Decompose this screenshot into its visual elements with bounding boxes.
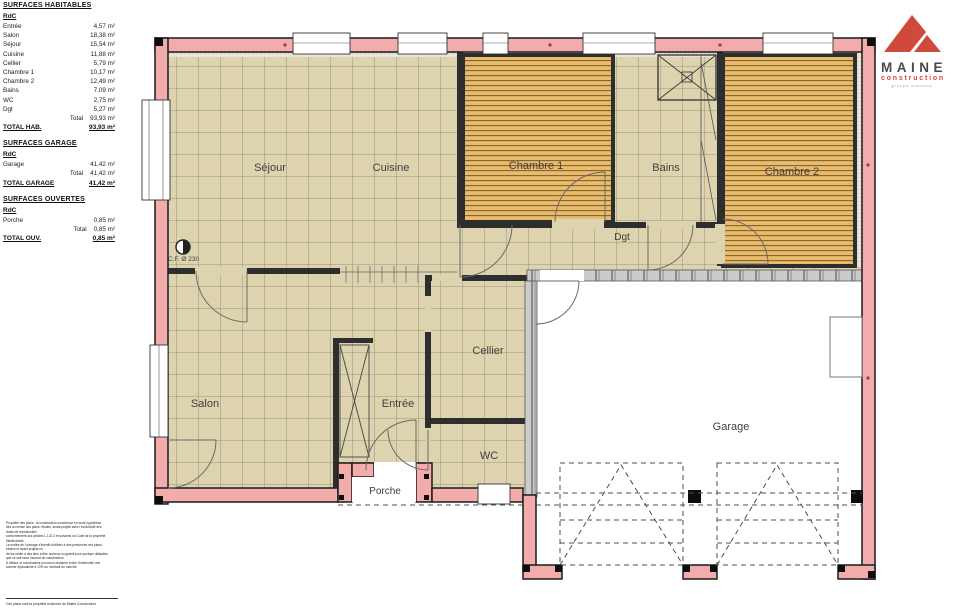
surface-legend: SURFACES HABITABLES RdC Entrée4,57 m² Sa…	[3, 2, 115, 244]
room-label-entree: Entrée	[382, 398, 414, 410]
grand-label: TOTAL OUV.	[3, 234, 41, 244]
room-label-chambre1: Chambre 1	[509, 160, 563, 172]
grand-total-row: TOTAL HAB.93,93 m²	[3, 123, 115, 133]
total-row: Total0,85 m²	[3, 225, 115, 234]
surface-row: Bains7,09 m²	[3, 86, 115, 95]
row-value: 5,27 m²	[94, 105, 115, 114]
row-label: Cellier	[3, 59, 21, 68]
total-value: 41,42 m²	[90, 169, 115, 178]
surface-row: Dgt5,27 m²	[3, 105, 115, 114]
surface-row: Salon18,38 m²	[3, 31, 115, 40]
mountain-icon	[868, 6, 956, 54]
row-value: 10,17 m²	[90, 68, 115, 77]
room-label-cellier: Cellier	[472, 345, 504, 357]
total-label: Total	[70, 169, 83, 178]
row-value: 5,79 m²	[94, 59, 115, 68]
room-label-chambre2: Chambre 2	[765, 166, 819, 178]
room-chambre1	[463, 55, 613, 222]
row-value: 4,57 m²	[94, 22, 115, 31]
row-value: 41,42 m²	[90, 160, 115, 169]
row-label: Chambre 2	[3, 77, 34, 86]
room-chambre2	[723, 55, 855, 266]
legal-fine-print: Propriété des plans : la construction co…	[6, 521, 126, 569]
total-value: 0,85 m²	[94, 225, 115, 234]
front-door-gap	[374, 462, 416, 478]
total-row: Total93,93 m²	[3, 114, 115, 123]
grand-label: TOTAL HAB.	[3, 123, 42, 133]
total-label: Total	[73, 225, 86, 234]
row-value: 18,38 m²	[90, 31, 115, 40]
row-label: Bains	[3, 86, 19, 95]
legend-level: RdC	[3, 207, 115, 214]
room-label-dgt: Dgt	[614, 232, 630, 243]
room-label-wc: WC	[480, 450, 498, 462]
grand-value: 0,85 m²	[93, 234, 115, 244]
floor-living-bottom	[168, 275, 528, 490]
legend-title-habitables: SURFACES HABITABLES	[3, 2, 115, 9]
room-label-bains: Bains	[652, 162, 680, 174]
row-value: 15,54 m²	[90, 40, 115, 49]
row-value: 12,49 m²	[90, 77, 115, 86]
surface-row: Cuisine11,88 m²	[3, 50, 115, 59]
total-label: Total	[70, 114, 83, 123]
surface-row: Garage41,42 m²	[3, 160, 115, 169]
surface-row: Porche0,85 m²	[3, 216, 115, 225]
row-value: 11,88 m²	[91, 50, 115, 59]
row-value: 7,09 m²	[94, 86, 115, 95]
row-label: Cuisine	[3, 50, 24, 59]
legend-level: RdC	[3, 13, 115, 20]
legend-level: RdC	[3, 151, 115, 158]
cf-label: C.F. Ø 230	[168, 256, 199, 263]
row-label: Porche	[3, 216, 23, 225]
grand-total-row: TOTAL GARAGE41,42 m²	[3, 179, 115, 189]
surface-row: Séjour15,54 m²	[3, 40, 115, 49]
maine-construction-logo: MAINE construction groupe maisons	[866, 6, 958, 88]
row-label: WC	[3, 96, 14, 105]
room-label-porche: Porche	[369, 486, 401, 497]
total-row: Total41,42 m²	[3, 169, 115, 178]
room-label-cuisine: Cuisine	[373, 162, 410, 174]
surface-row: Chambre 212,49 m²	[3, 77, 115, 86]
row-label: Dgt	[3, 105, 13, 114]
row-value: 2,75 m²	[94, 96, 115, 105]
row-label: Garage	[3, 160, 24, 169]
row-label: Séjour	[3, 40, 21, 49]
grand-value: 41,42 m²	[89, 179, 115, 189]
surface-row: Cellier5,79 m²	[3, 59, 115, 68]
surface-row: Entrée4,57 m²	[3, 22, 115, 31]
row-label: Salon	[3, 31, 19, 40]
room-label-garage: Garage	[713, 421, 750, 433]
row-value: 0,85 m²	[94, 216, 115, 225]
chimney-flue	[176, 240, 190, 254]
legend-title-ouvertes: SURFACES OUVERTES	[3, 196, 115, 203]
ownership-note: Ces plans sont la propriété exclusive de…	[6, 598, 118, 606]
total-value: 93,93 m²	[90, 114, 115, 123]
grand-label: TOTAL GARAGE	[3, 179, 54, 189]
logo-subtitle: construction	[868, 75, 958, 82]
grand-value: 93,93 m²	[89, 123, 115, 133]
legend-title-garage: SURFACES GARAGE	[3, 140, 115, 147]
logo-group-line: groupe maisons	[866, 84, 958, 88]
surface-row: WC2,75 m²	[3, 96, 115, 105]
row-label: Entrée	[3, 22, 22, 31]
surface-row: Chambre 110,17 m²	[3, 68, 115, 77]
floor-plan: Séjour Cuisine Chambre 1 Bains Chambre 2…	[0, 0, 960, 616]
grand-total-row: TOTAL OUV.0,85 m²	[3, 234, 115, 244]
floor-garage	[536, 281, 862, 565]
logo-name: MAINE	[870, 60, 958, 75]
room-label-salon: Salon	[191, 398, 219, 410]
garage-tank	[830, 317, 862, 377]
row-label: Chambre 1	[3, 68, 34, 77]
fine-print-line: somme équivalente à 10% du montant du ma…	[6, 565, 126, 569]
room-label-sejour: Séjour	[254, 162, 286, 174]
